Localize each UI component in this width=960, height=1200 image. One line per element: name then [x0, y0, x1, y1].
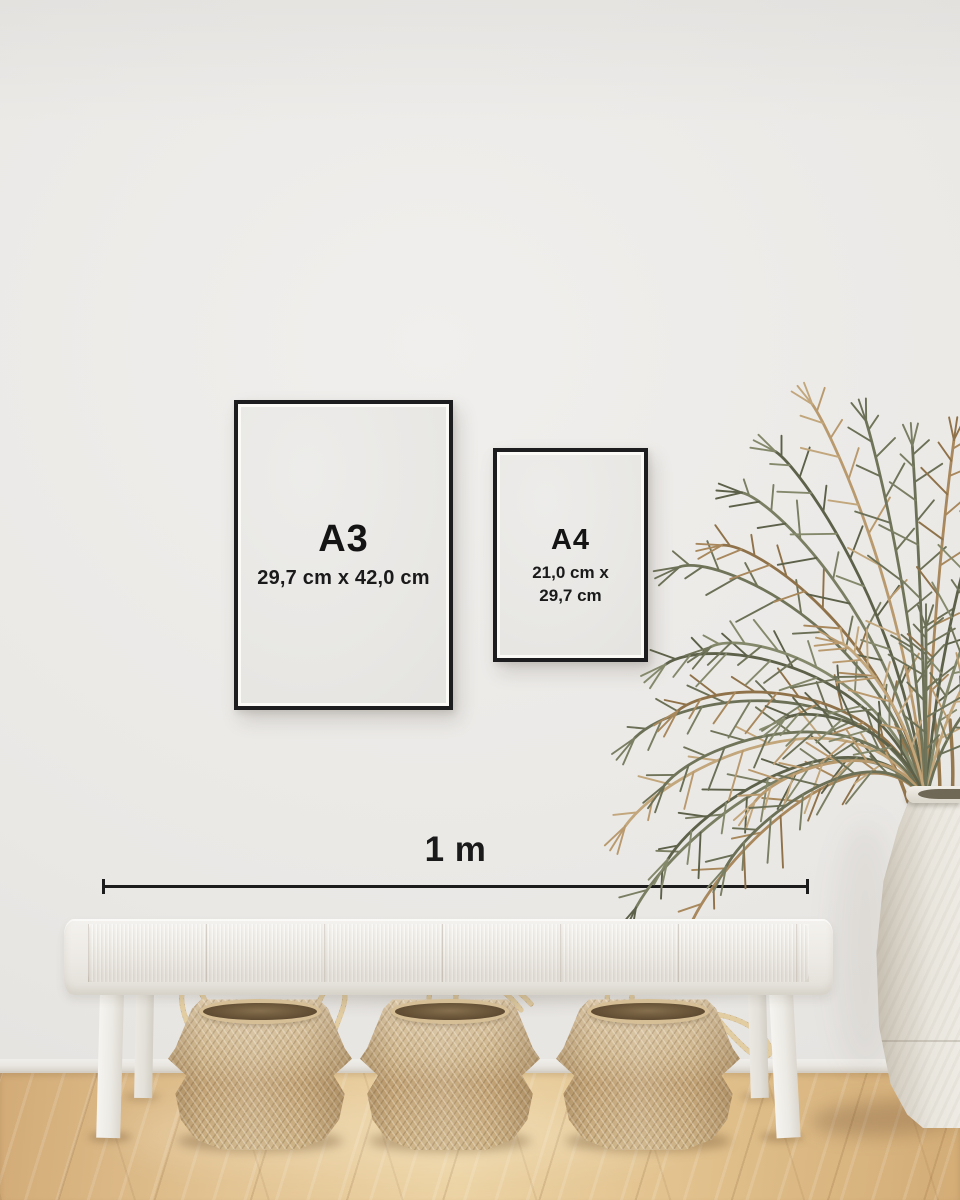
frame-a4-size-label: A4 [551, 526, 590, 555]
basket-left [168, 998, 352, 1150]
bench-leg-front-left [96, 992, 124, 1139]
bench-leg-back-right [748, 990, 769, 1098]
frame-a4-dimensions-line1: 21,0 cm x [532, 562, 609, 585]
basket-rim [199, 999, 320, 1024]
vase-opening [918, 789, 960, 799]
basket-right [556, 998, 740, 1150]
bench-woven-surface [88, 924, 809, 982]
bench-seat [64, 919, 833, 995]
frame-a4-dimensions-line2: 29,7 cm [532, 585, 609, 608]
frame-a3-size-label: A3 [318, 520, 369, 558]
basket-rim [587, 999, 708, 1024]
basket-middle [360, 998, 540, 1150]
basket-rim [391, 999, 510, 1024]
frame-a4: A4 21,0 cm x 29,7 cm [493, 448, 648, 662]
scale-line [102, 885, 809, 888]
frame-a3-dimensions: 29,7 cm x 42,0 cm [257, 567, 429, 590]
wall [0, 0, 960, 1074]
frame-size-guide-scene: 1 m A3 29,7 cm x 42,0 cm A4 21,0 cm x 29… [0, 0, 960, 1200]
bench-leg-back-left [134, 990, 154, 1098]
frame-a4-dimensions: 21,0 cm x 29,7 cm [532, 562, 609, 608]
frame-a3: A3 29,7 cm x 42,0 cm [234, 400, 453, 710]
scale-bar: 1 m [102, 830, 809, 892]
frame-a3-poster: A3 29,7 cm x 42,0 cm [238, 404, 449, 706]
frame-a4-poster: A4 21,0 cm x 29,7 cm [497, 452, 644, 658]
scale-label: 1 m [102, 830, 809, 870]
